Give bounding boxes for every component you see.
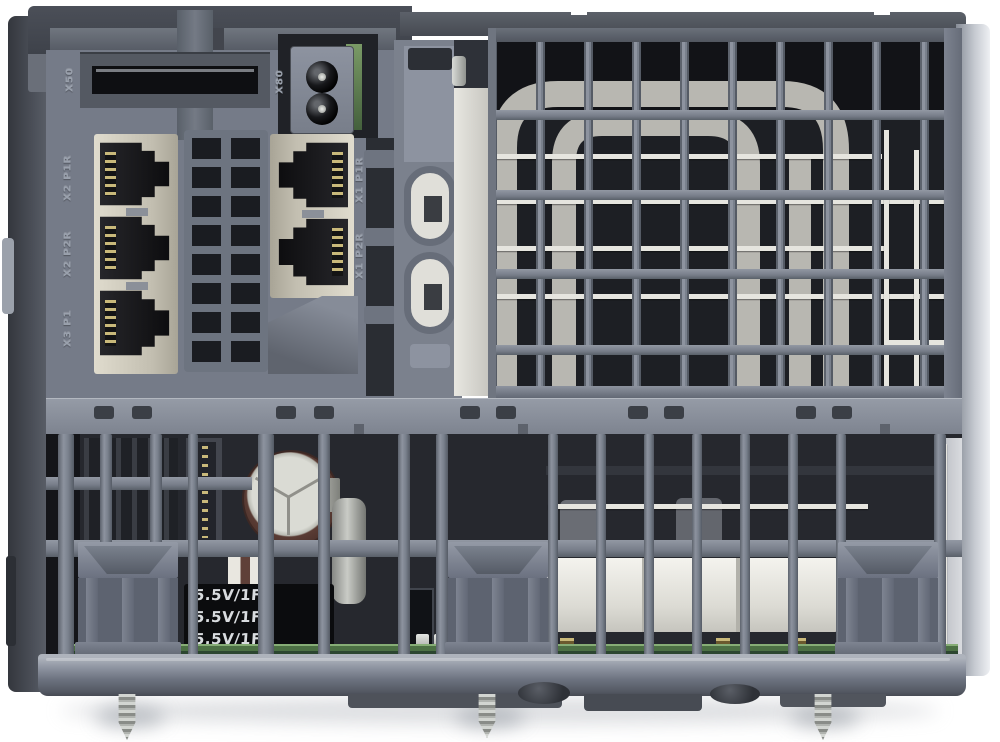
- decoration: [788, 434, 798, 658]
- decoration: [454, 546, 542, 574]
- decoration: [644, 434, 654, 658]
- decoration: [518, 424, 528, 434]
- latch-slot: [796, 406, 816, 419]
- rj45-pins: [105, 152, 116, 197]
- x80-label: X80: [272, 60, 288, 104]
- decoration: [740, 434, 750, 658]
- decoration: [944, 28, 962, 398]
- din-rail-clamp[interactable]: [838, 542, 938, 660]
- decoration: [105, 300, 116, 346]
- decoration: [918, 578, 930, 642]
- decoration: [424, 284, 442, 310]
- mounting-screw[interactable]: [813, 694, 833, 740]
- ethernet-port-x2-p1r[interactable]: [100, 140, 172, 208]
- left-edge-tab: [2, 238, 14, 314]
- latch-slot: [276, 406, 296, 419]
- product-photo-plc-module-bottom: X50 X80 X2 P1R X2 P2R X3 P1 X1 P1R X1 P2…: [0, 0, 1000, 742]
- decoration: [318, 434, 330, 658]
- decoration: [364, 150, 396, 168]
- decoration: [58, 434, 74, 658]
- decoration: [584, 694, 702, 711]
- mounting-boss: [710, 684, 760, 704]
- decoration: [354, 424, 364, 434]
- supercap-label-line: 5.5V/1F: [193, 608, 262, 626]
- decoration: [364, 306, 396, 324]
- decoration: [838, 578, 938, 642]
- decoration: [596, 434, 606, 658]
- decoration: [436, 434, 448, 658]
- decoration: [46, 477, 252, 490]
- decoration: [488, 110, 962, 120]
- decoration: [488, 190, 962, 200]
- decoration: [448, 542, 548, 578]
- decoration: [454, 88, 490, 396]
- ethernet-port-x2-p2r[interactable]: [100, 214, 172, 282]
- decoration: [158, 578, 170, 642]
- decoration: [46, 658, 950, 661]
- decoration: [546, 466, 962, 475]
- decoration: [408, 48, 452, 70]
- decoration: [488, 269, 962, 279]
- decoration: [410, 344, 450, 368]
- decoration: [488, 345, 962, 355]
- decoration: [846, 578, 858, 642]
- x50-label: X50: [62, 56, 78, 104]
- decoration: [571, 6, 587, 15]
- decoration: [838, 542, 938, 578]
- supercap-label-line: 5.5V/1F: [193, 586, 262, 604]
- decoration: [448, 578, 548, 642]
- latch-slot: [460, 406, 480, 419]
- latch-slot: [628, 406, 648, 419]
- heatsink-fins: [84, 438, 178, 542]
- decoration: [122, 578, 134, 642]
- decoration: [318, 73, 326, 81]
- decoration: [780, 694, 886, 707]
- x3-p1-label: X3 P1: [60, 300, 76, 356]
- x2-p2r-label: X2 P2R: [60, 222, 76, 286]
- decoration: [287, 497, 290, 535]
- decoration: [492, 578, 504, 642]
- latch-slot: [664, 406, 684, 419]
- decoration: [6, 556, 16, 646]
- decoration: [258, 434, 274, 658]
- decoration: [844, 546, 932, 574]
- decoration: [188, 434, 198, 658]
- decoration: [488, 28, 962, 42]
- decoration: [96, 69, 254, 72]
- latch-slot: [496, 406, 516, 419]
- decoration: [456, 578, 468, 642]
- decoration: [398, 434, 410, 658]
- mounting-screw[interactable]: [117, 694, 137, 740]
- decoration: [86, 578, 98, 642]
- ethernet-port-x1-p1r[interactable]: [276, 140, 348, 210]
- latch-slot: [94, 406, 114, 419]
- decoration: [692, 434, 702, 658]
- decoration: [488, 28, 496, 398]
- decoration: [874, 6, 890, 15]
- decoration: [202, 446, 208, 538]
- decoration: [424, 196, 442, 222]
- decoration: [78, 542, 178, 578]
- din-rail-clamp[interactable]: [78, 542, 178, 660]
- decoration: [488, 386, 962, 398]
- decoration: [221, 138, 231, 364]
- grille-bars: [488, 28, 962, 398]
- decoration: [452, 56, 466, 86]
- ethernet-port-x3-p1[interactable]: [100, 288, 172, 358]
- latch-slot: [314, 406, 334, 419]
- din-rail-clamp[interactable]: [448, 542, 548, 660]
- decoration: [880, 424, 890, 434]
- latch-slot: [832, 406, 852, 419]
- decoration: [528, 578, 540, 642]
- x2-p1r-label: X2 P1R: [60, 146, 76, 210]
- decoration: [332, 228, 343, 276]
- decoration: [366, 138, 396, 396]
- latch-slot: [132, 406, 152, 419]
- mounting-boss: [518, 682, 570, 704]
- mounting-screw[interactable]: [477, 694, 497, 738]
- decoration: [364, 228, 396, 246]
- decoration: [332, 152, 343, 198]
- decoration: [105, 226, 116, 271]
- decoration: [318, 105, 326, 113]
- decoration: [78, 578, 178, 642]
- decoration: [882, 578, 894, 642]
- decoration: [84, 546, 172, 574]
- ethernet-port-x1-p2r[interactable]: [276, 216, 348, 288]
- decoration: [548, 434, 558, 658]
